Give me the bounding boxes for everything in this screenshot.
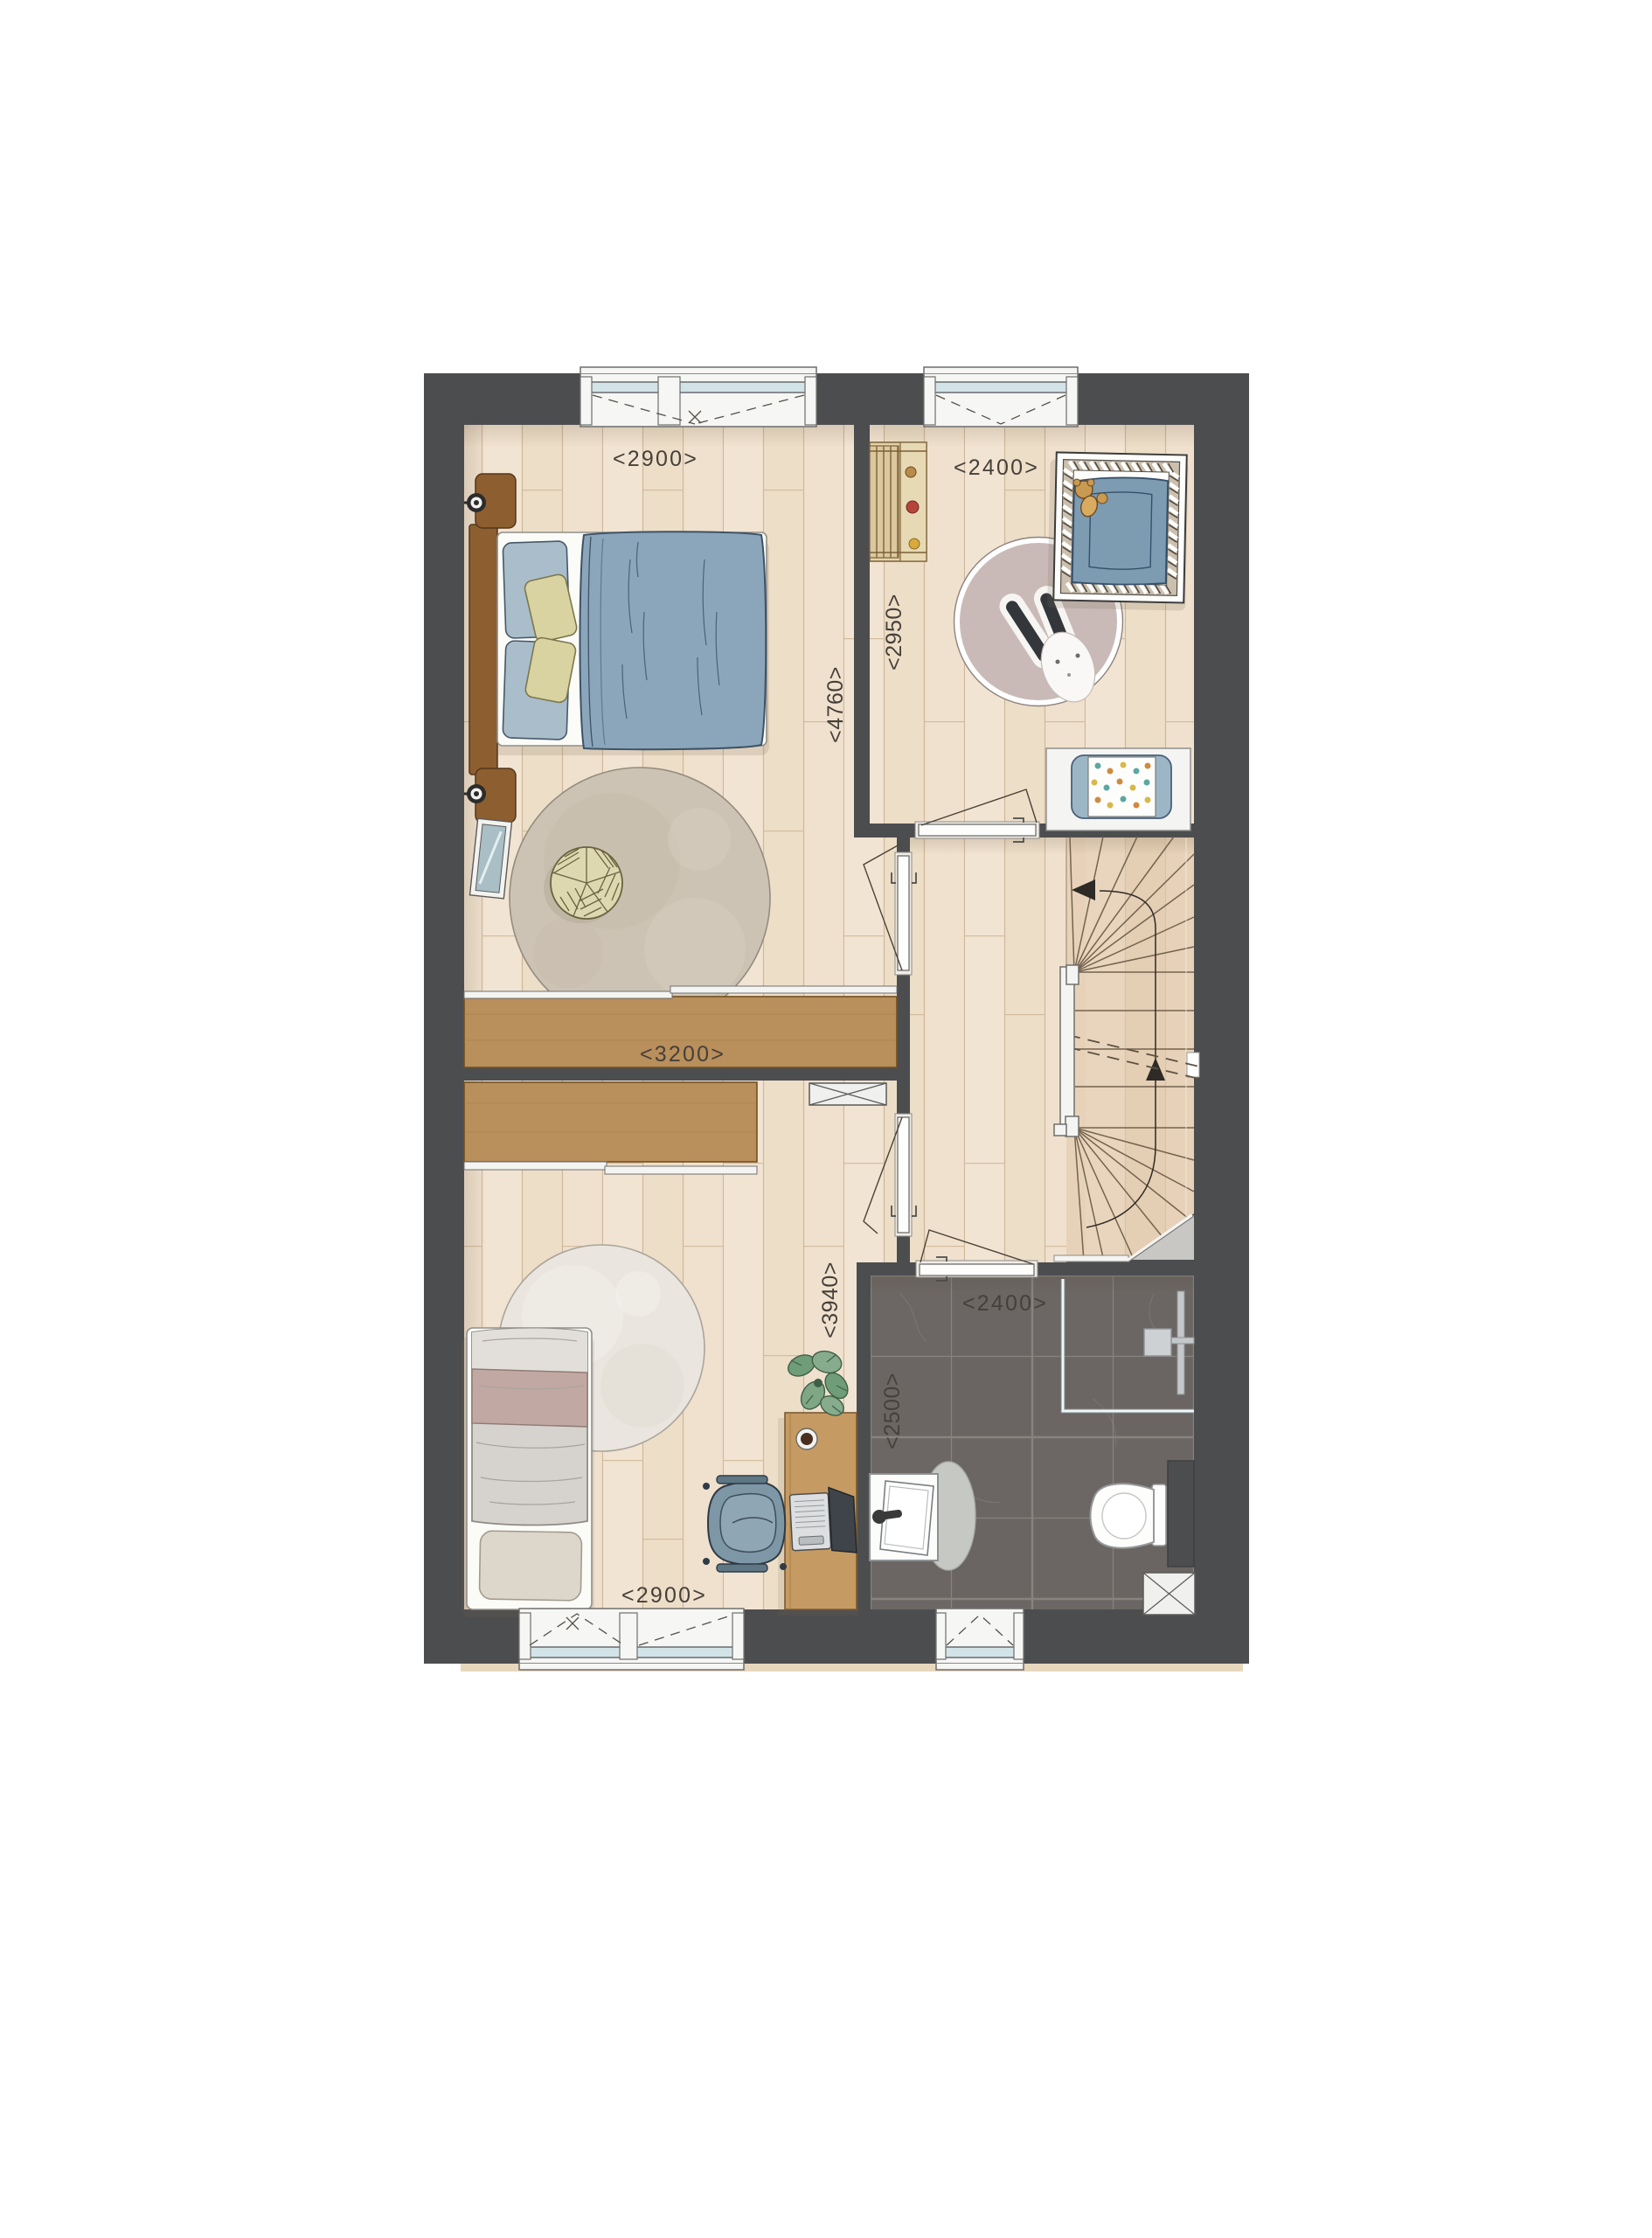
svg-text:<2400>: <2400> (962, 1291, 1048, 1316)
svg-text:<2500>: <2500> (880, 1373, 905, 1449)
svg-text:<2900>: <2900> (613, 447, 698, 471)
svg-text:<2900>: <2900> (621, 1583, 707, 1608)
svg-text:<2400>: <2400> (954, 455, 1039, 480)
svg-text:<4760>: <4760> (823, 666, 848, 743)
svg-text:<3940>: <3940> (818, 1261, 843, 1338)
svg-text:<3200>: <3200> (640, 1042, 725, 1067)
svg-text:<2950>: <2950> (882, 594, 906, 671)
